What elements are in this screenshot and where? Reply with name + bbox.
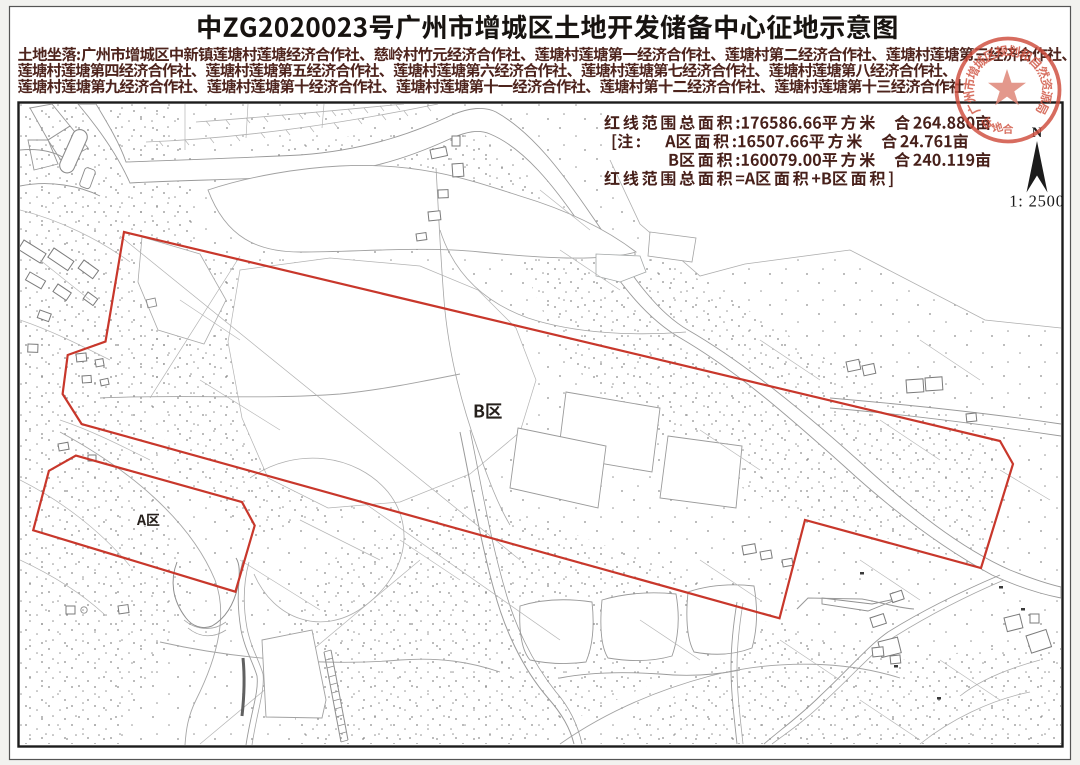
svg-text:1: 2500: 1: 2500	[1009, 192, 1065, 211]
